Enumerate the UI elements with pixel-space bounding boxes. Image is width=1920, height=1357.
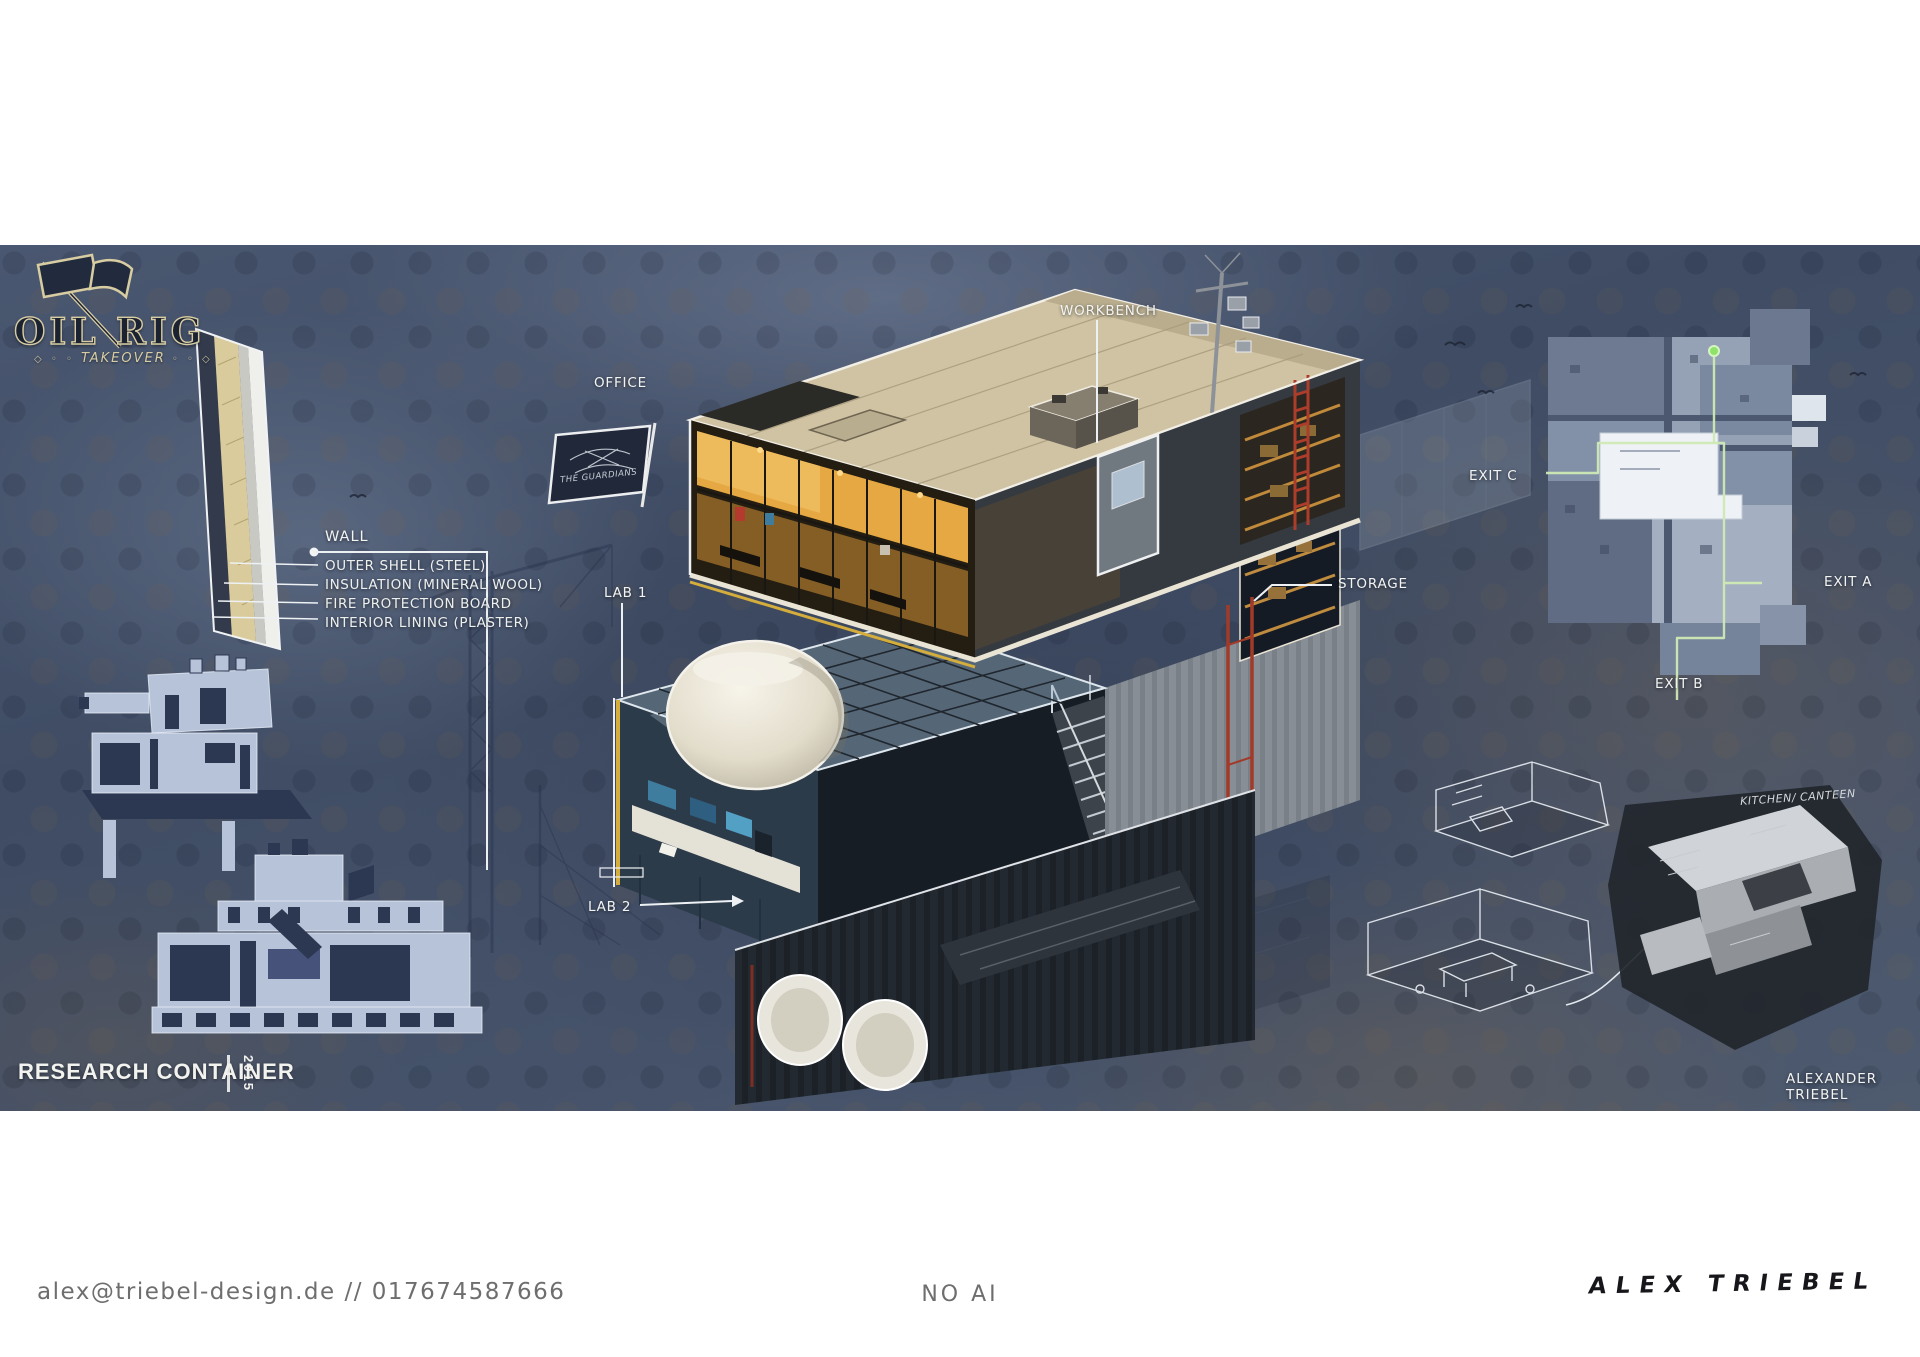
door — [1098, 435, 1158, 575]
illustration-canvas — [0, 245, 1920, 1111]
artist-signature: ALEX TRIEBEL — [1586, 1268, 1878, 1299]
poster: OIL RIG ◇ ◦ ◦ TAKEOVER ◦ ◦ ◇ WALL OUTER … — [0, 0, 1920, 1357]
wall-section-layer-list: OUTER SHELL (STEEL) INSULATION (MINERAL … — [325, 557, 543, 633]
logo-ornament-left: ◇ ◦ ◦ — [34, 354, 75, 365]
plan-label-exit-a: EXIT A — [1824, 574, 1872, 590]
wall-layer-label: FIRE PROTECTION BOARD — [325, 595, 543, 614]
wall-layer-label: OUTER SHELL (STEEL) — [325, 557, 543, 576]
logo-ornament-right: ◦ ◦ ◇ — [172, 354, 213, 365]
plan-label-exit-c: EXIT C — [1469, 468, 1518, 484]
floor-plan-illustration — [1546, 309, 1826, 700]
callout-lab-1: LAB 1 — [604, 585, 647, 601]
contact-info: alex@triebel-design.de // 017674587666 — [37, 1279, 565, 1305]
project-title-divider — [227, 1055, 230, 1092]
wireframe-sketch-2 — [1368, 889, 1592, 1011]
artwork-band: OIL RIG ◇ ◦ ◦ TAKEOVER ◦ ◦ ◇ WALL OUTER … — [0, 245, 1920, 1111]
wireframe-sketch-1 — [1436, 762, 1608, 857]
grayscale-interior-sketch — [1608, 785, 1882, 1050]
wall-section-title: WALL — [325, 529, 369, 545]
wall-layer-label: INSULATION (MINERAL WOOL) — [325, 576, 543, 595]
author-name: ALEXANDER TRIEBEL — [1786, 1071, 1920, 1103]
guardians-flag — [549, 423, 655, 507]
bottom-margin: alex@triebel-design.de // 017674587666 N… — [0, 1111, 1920, 1357]
blueprint-sketch-container-b — [152, 839, 482, 1033]
logo-subtitle: ◇ ◦ ◦ TAKEOVER ◦ ◦ ◇ — [34, 351, 213, 366]
plan-label-exit-b: EXIT B — [1655, 676, 1703, 692]
callout-workbench: WORKBENCH — [1060, 303, 1157, 319]
project-year: 2015 — [241, 1055, 256, 1092]
callout-storage: STORAGE — [1338, 576, 1408, 592]
route-start-dot — [1709, 346, 1719, 356]
wall-layer-label: INTERIOR LINING (PLASTER) — [325, 614, 543, 633]
callout-office: OFFICE — [594, 375, 647, 391]
no-ai-note: NO AI — [921, 1282, 998, 1307]
callout-lab-2: LAB 2 — [588, 899, 631, 915]
logo-subtitle-text: TAKEOVER — [81, 351, 166, 366]
top-margin — [0, 0, 1920, 245]
building-cutaway-illustration — [614, 253, 1360, 1105]
logo-title: OIL RIG — [14, 311, 206, 353]
